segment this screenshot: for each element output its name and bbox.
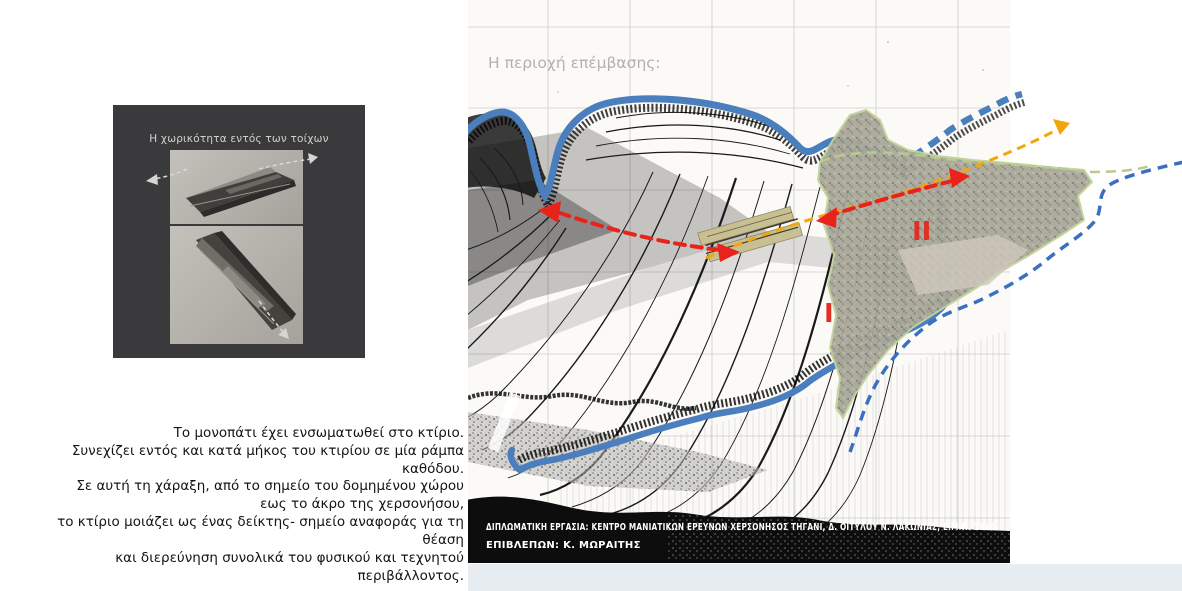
region-label-1: I xyxy=(824,299,834,329)
map-title: Η περιοχή επέμβασης: xyxy=(488,54,661,72)
credits-line-1: ΔΙΠΛΩΜΑΤΙΚΗ ΕΡΓΑΣΙΑ: ΚΕΝΤΡΟ ΜΑΝΙΑΤΙΚΩΝ Ε… xyxy=(486,522,998,533)
model-photo-panel: Η χωρικότητα εντός των τοίχων xyxy=(113,105,365,358)
region-label-2: II xyxy=(912,217,931,247)
model-caption: Η χωρικότητα εντός των τοίχων xyxy=(113,133,365,145)
yellow-arrowhead-icon xyxy=(1053,119,1070,135)
arrowhead-upright-icon xyxy=(308,153,318,164)
arrowhead-left-icon xyxy=(146,174,158,185)
model-photo-top-graphic xyxy=(170,150,303,224)
footer-strip xyxy=(468,564,1182,591)
intervention-area-map: Η περιοχή επέμβασης: xyxy=(468,0,1182,563)
narrative-line: και διερεύνηση συνολικά του φυσικού και … xyxy=(40,550,464,586)
narrative-line: το κτίριο μοιάζει ως ένας δείκτης- σημεί… xyxy=(40,514,464,550)
credits-line-2: ΕΠΙΒΛΕΠΩΝ: Κ. ΜΩΡΑΙΤΗΣ xyxy=(486,540,641,551)
model-photo-bottom xyxy=(170,226,303,344)
narrative-line: Το μονοπάτι έχει ενσωματωθεί στο κτίριο. xyxy=(40,425,464,443)
narrative-text-block: Το μονοπάτι έχει ενσωματωθεί στο κτίριο.… xyxy=(40,425,464,585)
map-graphic: Η περιοχή επέμβασης: xyxy=(468,0,1182,563)
presentation-board: Η χωρικότητα εντός των τοίχων xyxy=(0,0,1182,591)
model-photo-bottom-graphic xyxy=(170,226,303,344)
narrative-line: εως το άκρο της χερσονήσου, xyxy=(40,496,464,514)
model-photo-top xyxy=(170,150,303,224)
narrative-line: Συνεχίζει εντός και κατά μήκος του κτιρί… xyxy=(40,443,464,479)
narrative-line: Σε αυτή τη χάραξη, από το σημείο του δομ… xyxy=(40,478,464,496)
